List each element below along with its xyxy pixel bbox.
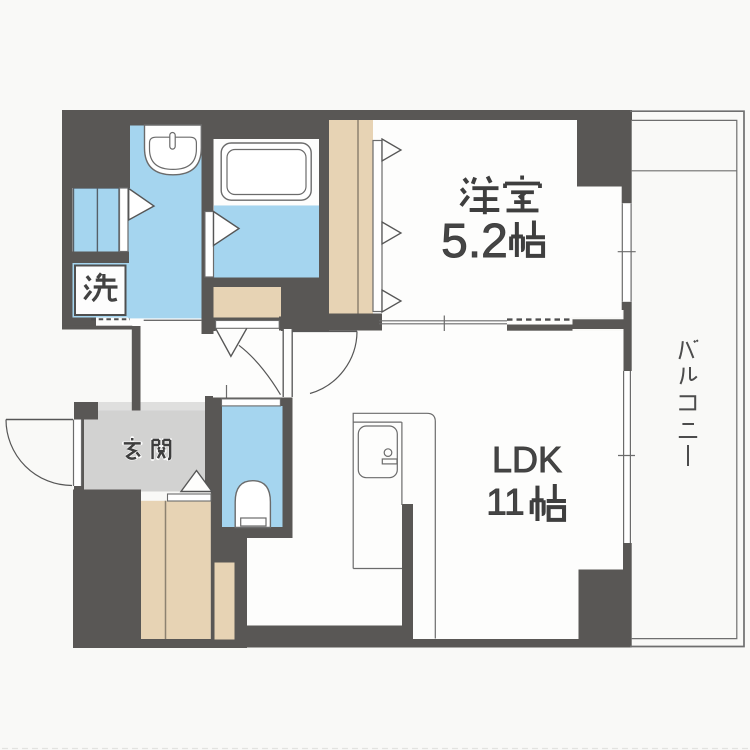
svg-text:11: 11 [486,482,524,523]
svg-text:5.2: 5.2 [441,215,508,268]
svg-text:LDK: LDK [492,439,562,480]
